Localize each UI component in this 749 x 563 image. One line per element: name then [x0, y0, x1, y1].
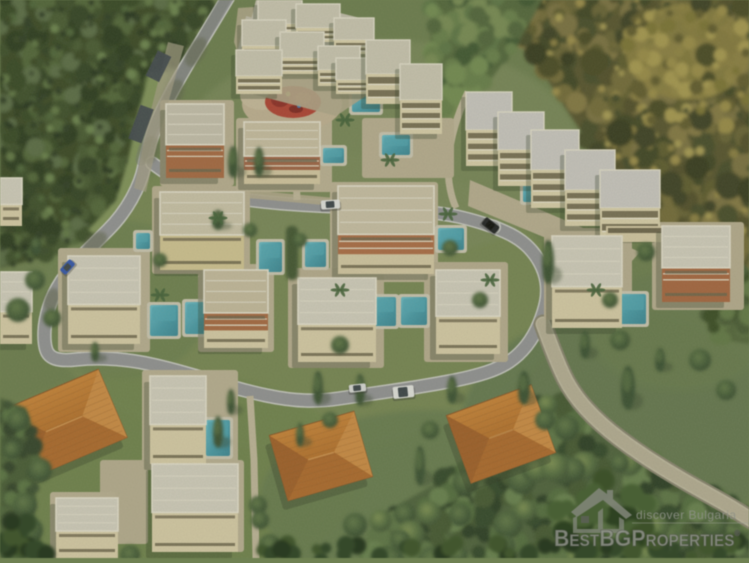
svg-text:discover Bulgaria: discover Bulgaria: [636, 508, 737, 522]
